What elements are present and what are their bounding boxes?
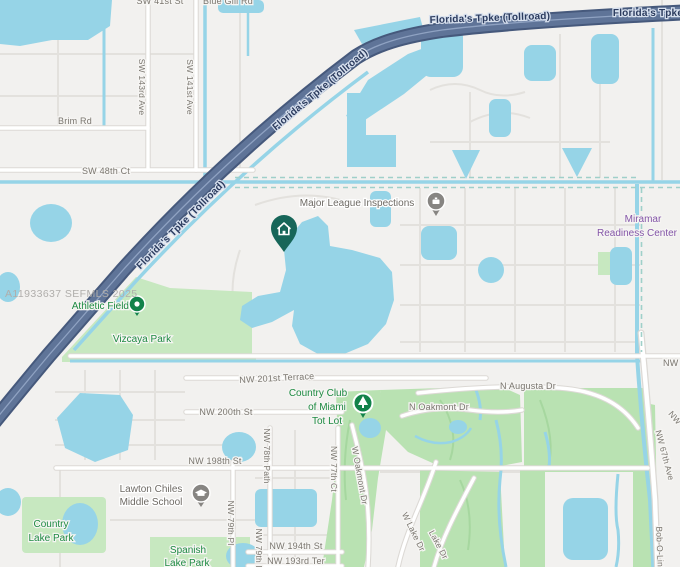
watermark-text: A11933637 SEFMLS 2025 — [5, 288, 138, 300]
poi-label-country-lake-1: Country — [33, 519, 68, 530]
street-label-bob-o-link: Bob-O-Link — [654, 526, 666, 572]
street-label-sw-41st: SW 41st St — [136, 0, 183, 6]
poi-label-lawton-1: Lawton Chiles — [120, 484, 183, 495]
street-label-nw-200th: NW 200th St — [199, 407, 253, 417]
map-canvas[interactable]: SW 41st St Blue Gill Rd SW 143rd Ave SW … — [0, 0, 680, 582]
poi-label-lawton-2: Middle School — [120, 497, 183, 508]
street-label-sw-143rd: SW 143rd Ave — [137, 59, 147, 116]
street-label-nw-77th-ct: NW 77th Ct — [329, 446, 339, 492]
bottom-margin — [0, 567, 680, 582]
street-label-sw-141st: SW 141st Ave — [185, 59, 195, 115]
poi-label-spanish-lake-1: Spanish — [170, 545, 206, 556]
poi-label-vizcaya-park: Vizcaya Park — [113, 334, 172, 345]
poi-label-major-league-inspections: Major League Inspections — [300, 198, 415, 209]
street-label-nw-partial: NW — [663, 358, 679, 368]
poi-label-tot-lot-3: Tot Lot — [312, 416, 342, 427]
street-label-nw-193rd: NW 193rd Ter — [267, 556, 325, 566]
street-label-nw-194th: NW 194th St — [269, 541, 323, 551]
street-label-nw-78th-path: NW 78th Path — [262, 428, 272, 483]
street-label-nw-79th-pl: NW 79th Pl — [226, 501, 236, 546]
street-label-n-oakmont: N Oakmont Dr — [409, 402, 469, 412]
map-container[interactable]: SW 41st St Blue Gill Rd SW 143rd Ave SW … — [0, 0, 680, 582]
street-label-nw-79th-pl-2: NW 79th Pl — [254, 529, 264, 574]
poi-label-athletic-field: Athletic Field — [72, 301, 129, 312]
street-label-brim-rd: Brim Rd — [58, 116, 92, 126]
street-label-nw-198th: NW 198th St — [188, 456, 242, 466]
highway-label-top-right: Florida's Tpke — [613, 8, 680, 19]
poi-label-miramar-2: Readiness Center — [597, 228, 678, 239]
street-label-blue-gill: Blue Gill Rd — [203, 0, 253, 6]
street-label-sw-48th: SW 48th Ct — [82, 166, 130, 176]
poi-label-country-lake-2: Lake Park — [28, 533, 74, 544]
poi-label-tot-lot-2: of Miami — [308, 402, 346, 413]
poi-label-tot-lot-1: Country Club — [289, 388, 348, 399]
poi-label-miramar-1: Miramar — [625, 214, 662, 225]
street-label-n-augusta: N Augusta Dr — [500, 381, 556, 391]
